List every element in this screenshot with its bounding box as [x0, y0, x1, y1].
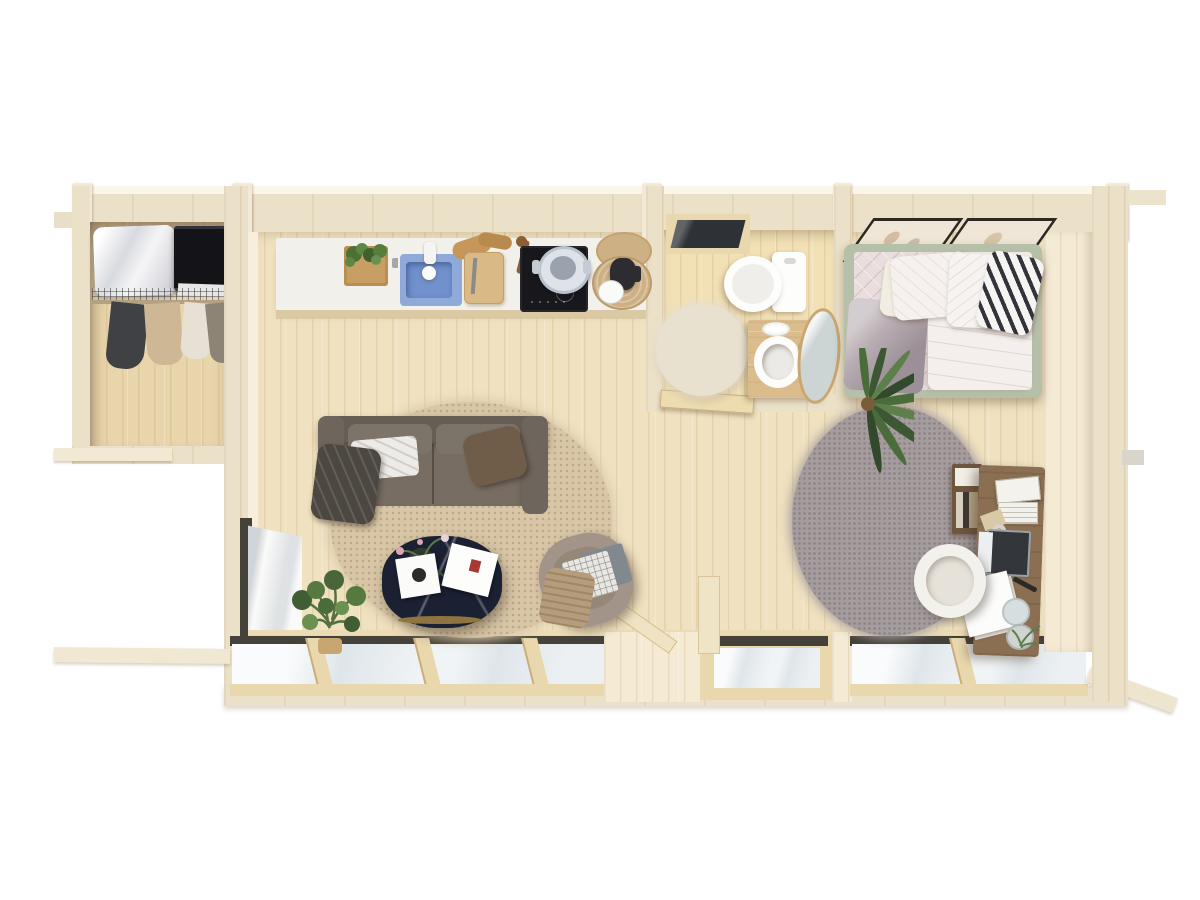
kitchen-counter-edge [276, 310, 646, 319]
sink-faucet-head [422, 266, 436, 280]
coffee-table-gold-rim [398, 616, 482, 624]
pot-handle-right [583, 260, 591, 274]
sofa-seat-divider [432, 444, 434, 504]
log-stub-mid-right [1122, 450, 1144, 465]
front-window-rail [706, 636, 828, 646]
toilet-seat-inner [732, 264, 774, 304]
fringed-blanket [538, 566, 597, 630]
storage-left-wall [72, 186, 90, 464]
partition-stub-wall [698, 576, 720, 654]
right-wall [1092, 186, 1128, 702]
desk-plant-sprig [1008, 606, 1044, 652]
hanging-garment-tan [144, 302, 184, 366]
log-plank-bottom-left [54, 647, 230, 664]
living-potted-plant [286, 554, 374, 658]
glass-section-a-sill [230, 684, 606, 696]
palm-plant [790, 348, 914, 478]
skylight-glass [671, 220, 746, 248]
black-storage-box [174, 226, 228, 291]
cutting-board [464, 252, 504, 304]
herb-plants [340, 240, 392, 282]
coffee-cup [598, 280, 624, 304]
shelf-white-box [955, 468, 979, 486]
right-wall-inner-face [1044, 232, 1092, 652]
bathroom-rug [656, 304, 748, 396]
sofa-dark-throw [310, 442, 383, 525]
log-stub-top-left [54, 212, 74, 228]
coffee-pot-handle [633, 266, 641, 282]
wall-pier-2 [832, 632, 852, 702]
front-window-glass [714, 648, 820, 688]
scene-canvas [0, 0, 1200, 900]
card-dark-detail [412, 568, 426, 582]
sink-faucet-stem [424, 242, 436, 264]
log-stub-top-right [1126, 190, 1166, 205]
shelf-books [956, 492, 978, 528]
log-plank-left [54, 448, 172, 461]
bathroom-wall-left [646, 186, 664, 412]
office-chair-seat [926, 556, 974, 606]
desk-books-stack [995, 476, 1041, 504]
soap-dish [762, 322, 790, 336]
toilet-flush-button [784, 258, 796, 264]
hob-controls [528, 300, 568, 304]
pot-handle-left [532, 260, 540, 274]
steel-pot-inner [550, 256, 576, 280]
duvet-storage-bag [93, 225, 177, 298]
glass-section-c-sill [850, 684, 1088, 696]
